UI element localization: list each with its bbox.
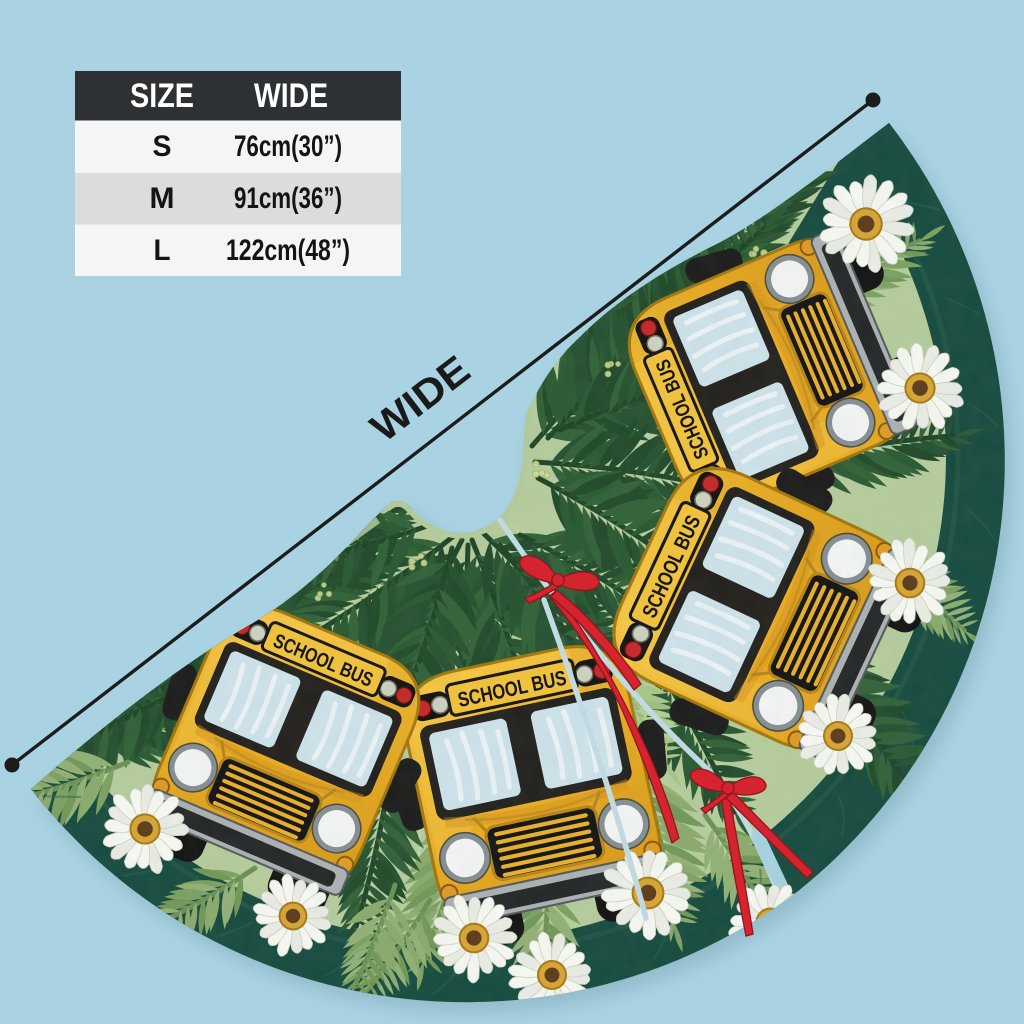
svg-text:L: L (154, 234, 171, 267)
svg-text:M: M (150, 182, 175, 215)
svg-text:SIZE: SIZE (130, 77, 194, 115)
svg-text:122cm(48”): 122cm(48”) (226, 234, 350, 267)
svg-text:76cm(30”): 76cm(30”) (234, 130, 342, 163)
svg-text:91cm(36”): 91cm(36”) (234, 182, 342, 215)
svg-text:WIDE: WIDE (254, 77, 328, 115)
svg-text:S: S (153, 130, 172, 163)
